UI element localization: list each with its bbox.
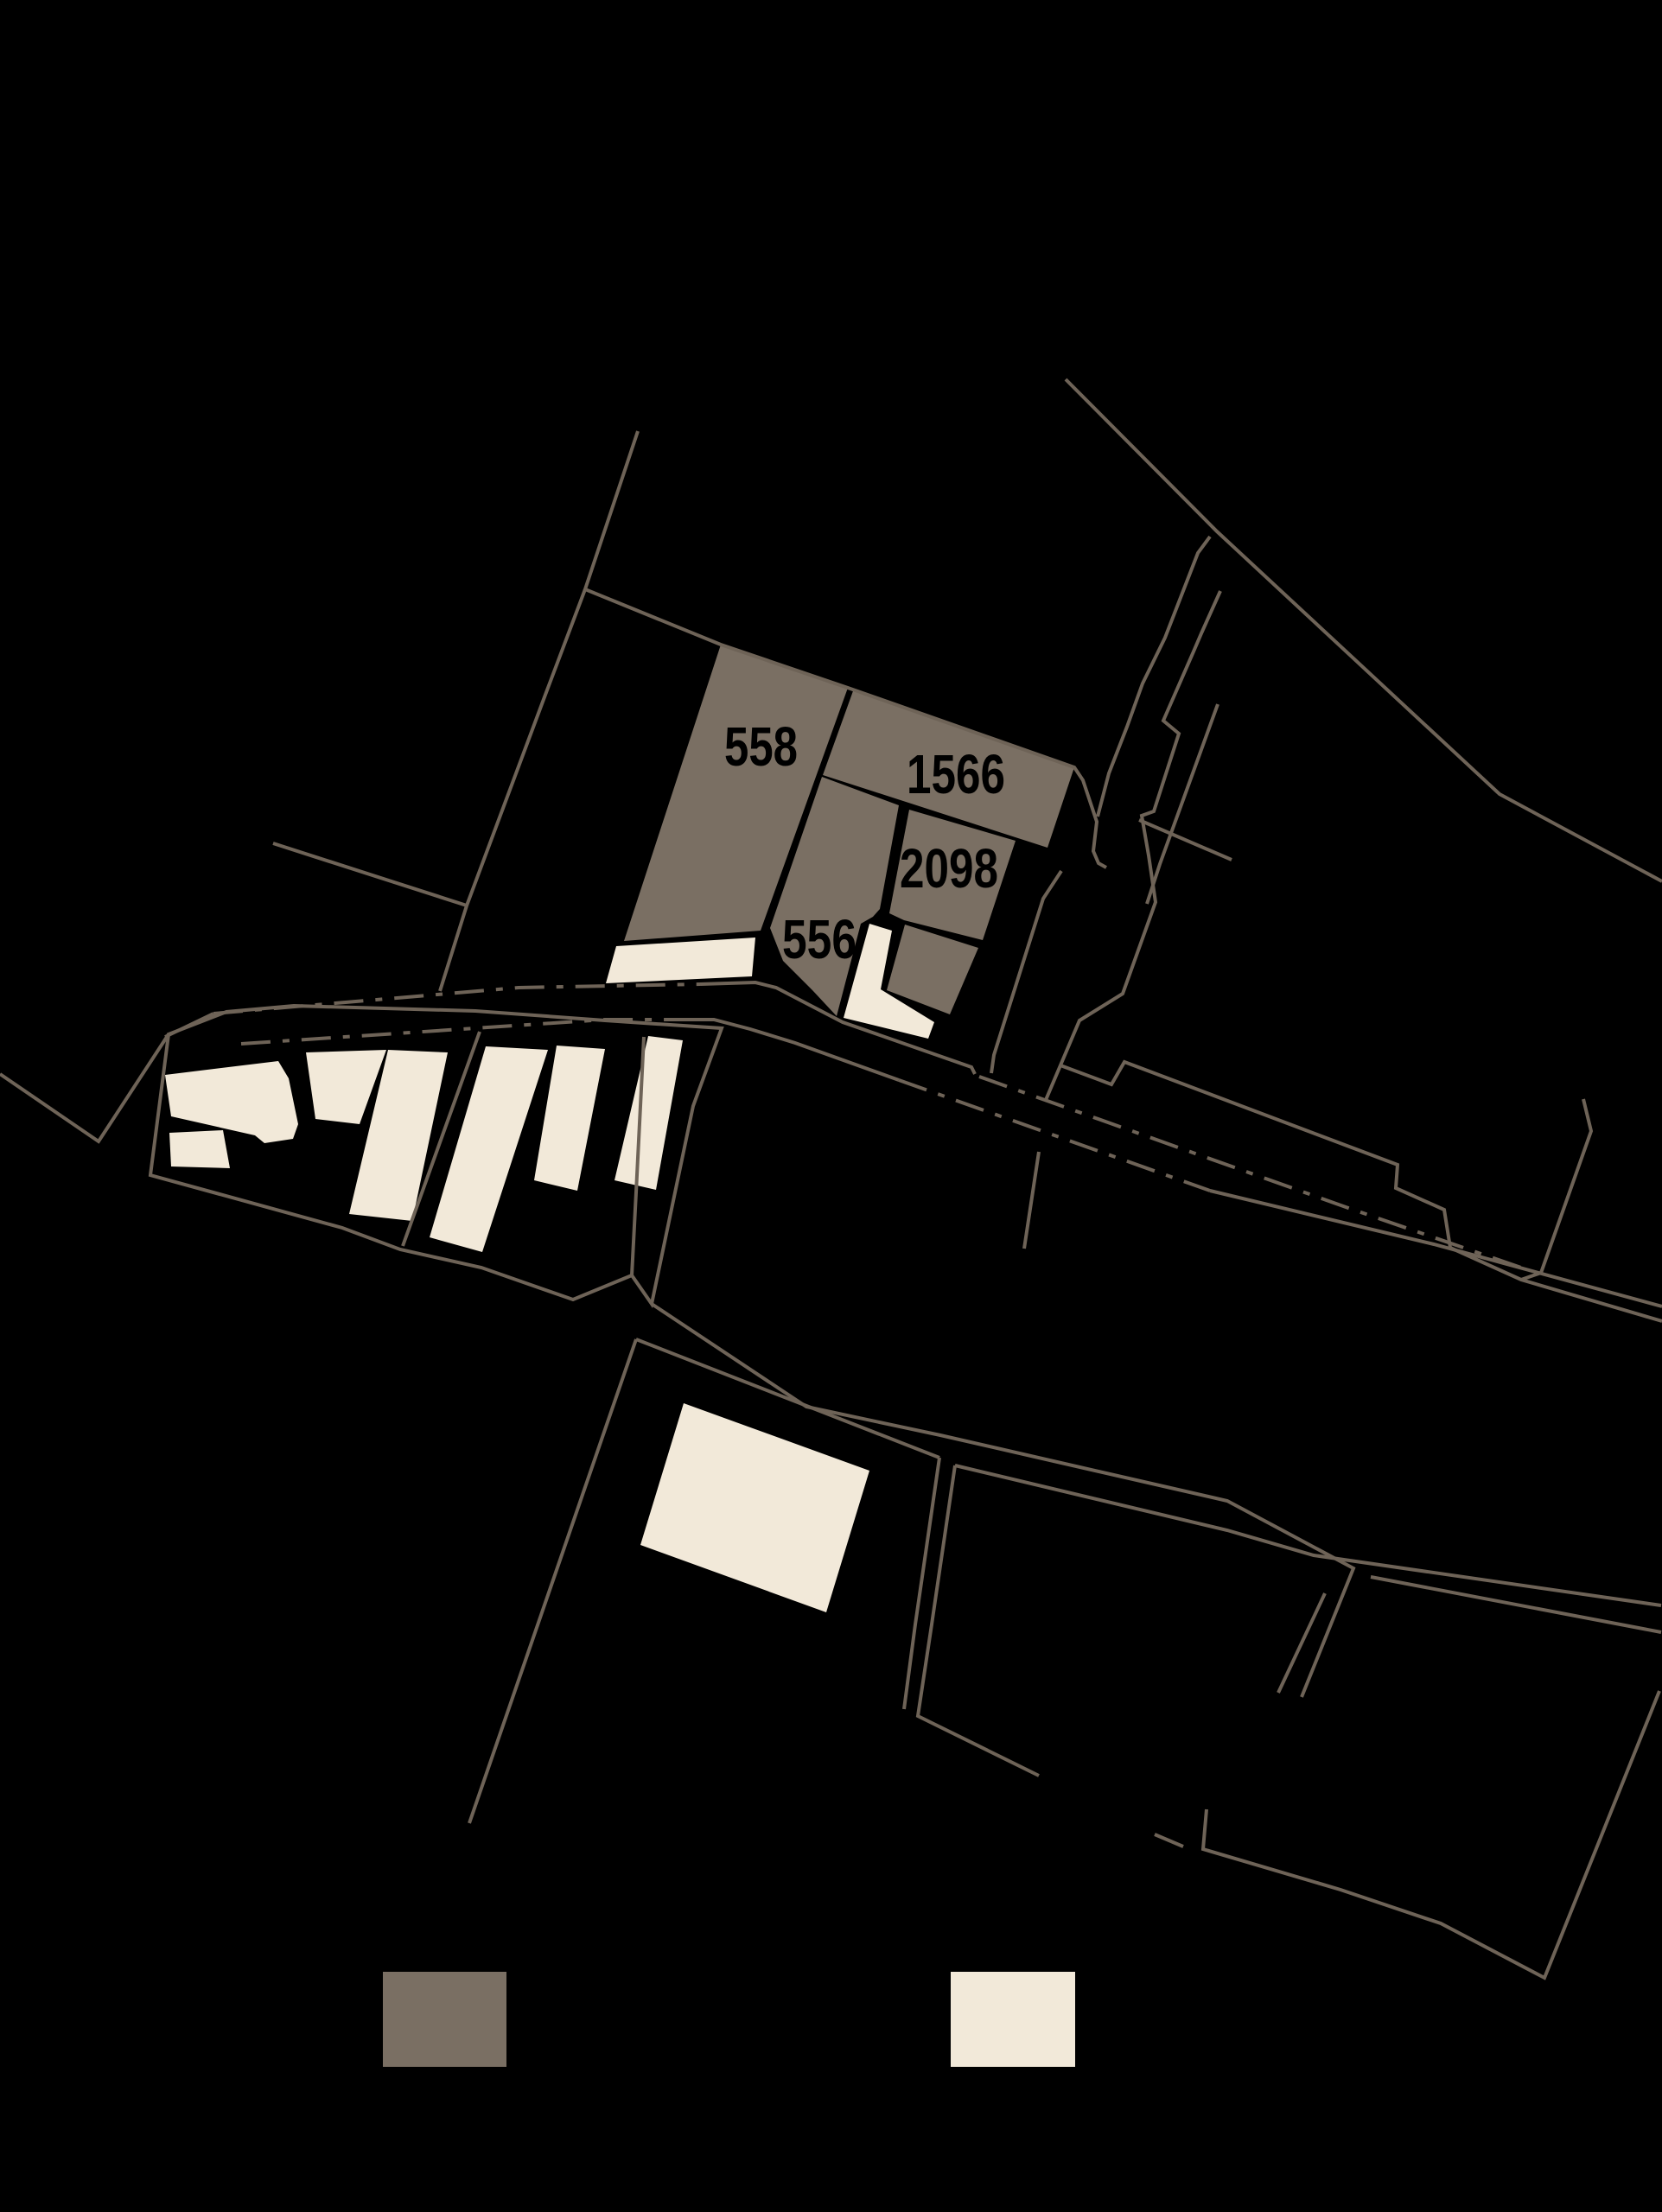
svg-text:558: 558 bbox=[724, 715, 798, 778]
svg-text:556: 556 bbox=[782, 908, 856, 970]
svg-text:1566: 1566 bbox=[907, 743, 1005, 805]
svg-text:2098: 2098 bbox=[900, 837, 998, 899]
